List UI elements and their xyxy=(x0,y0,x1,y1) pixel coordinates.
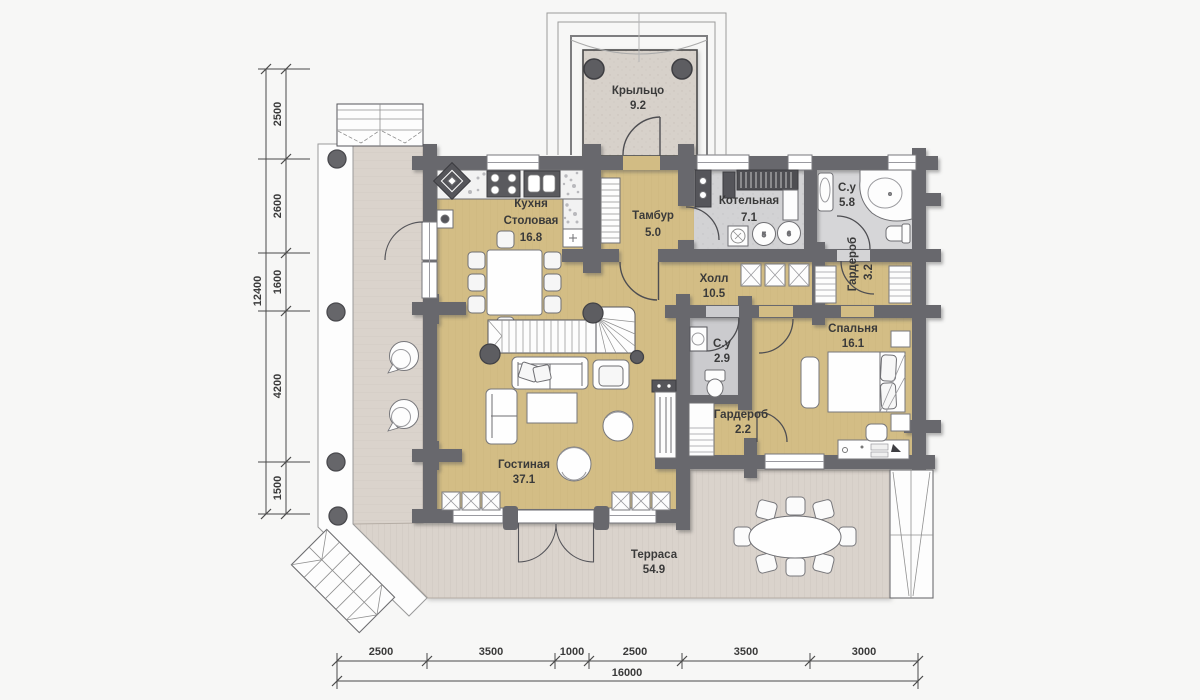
svg-text:Крыльцо: Крыльцо xyxy=(612,85,664,97)
svg-text:5.0: 5.0 xyxy=(645,227,661,239)
svg-text:3.2: 3.2 xyxy=(863,264,875,280)
svg-text:16000: 16000 xyxy=(612,667,643,679)
svg-text:2.2: 2.2 xyxy=(735,424,751,436)
svg-text:1000: 1000 xyxy=(560,646,584,658)
svg-text:10.5: 10.5 xyxy=(703,288,726,300)
svg-text:Кухня: Кухня xyxy=(514,198,548,210)
svg-text:7.1: 7.1 xyxy=(741,212,758,224)
svg-text:2500: 2500 xyxy=(369,646,393,658)
svg-text:Холл: Холл xyxy=(700,273,729,285)
svg-text:С.у: С.у xyxy=(838,182,857,194)
svg-text:9.2: 9.2 xyxy=(630,100,646,112)
svg-text:6: 6 xyxy=(787,231,791,238)
svg-text:1500: 1500 xyxy=(272,476,284,500)
svg-text:1600: 1600 xyxy=(272,270,284,294)
svg-text:Терраса: Терраса xyxy=(631,549,678,561)
svg-text:37.1: 37.1 xyxy=(513,474,536,486)
svg-text:16.1: 16.1 xyxy=(842,338,865,350)
svg-text:12400: 12400 xyxy=(252,276,264,307)
svg-text:2500: 2500 xyxy=(272,102,284,126)
svg-text:2500: 2500 xyxy=(623,646,647,658)
svg-text:Тамбур: Тамбур xyxy=(632,210,674,222)
svg-text:54.9: 54.9 xyxy=(643,564,665,576)
svg-text:Котельная: Котельная xyxy=(719,195,779,207)
svg-text:Гардероб: Гардероб xyxy=(847,237,859,291)
svg-text:5: 5 xyxy=(762,232,766,239)
svg-text:3500: 3500 xyxy=(479,646,503,658)
svg-text:3500: 3500 xyxy=(734,646,758,658)
svg-text:Гардероб: Гардероб xyxy=(714,409,768,421)
svg-text:2.9: 2.9 xyxy=(714,353,730,365)
svg-text:5.8: 5.8 xyxy=(839,197,856,209)
svg-text:Гостиная: Гостиная xyxy=(498,459,550,471)
svg-text:16.8: 16.8 xyxy=(520,232,543,244)
svg-text:С.у: С.у xyxy=(713,338,732,350)
svg-text:3000: 3000 xyxy=(852,646,876,658)
svg-text:4200: 4200 xyxy=(272,374,284,398)
svg-text:2600: 2600 xyxy=(272,194,284,218)
svg-text:Спальня: Спальня xyxy=(828,323,878,335)
svg-text:Столовая: Столовая xyxy=(504,215,559,227)
